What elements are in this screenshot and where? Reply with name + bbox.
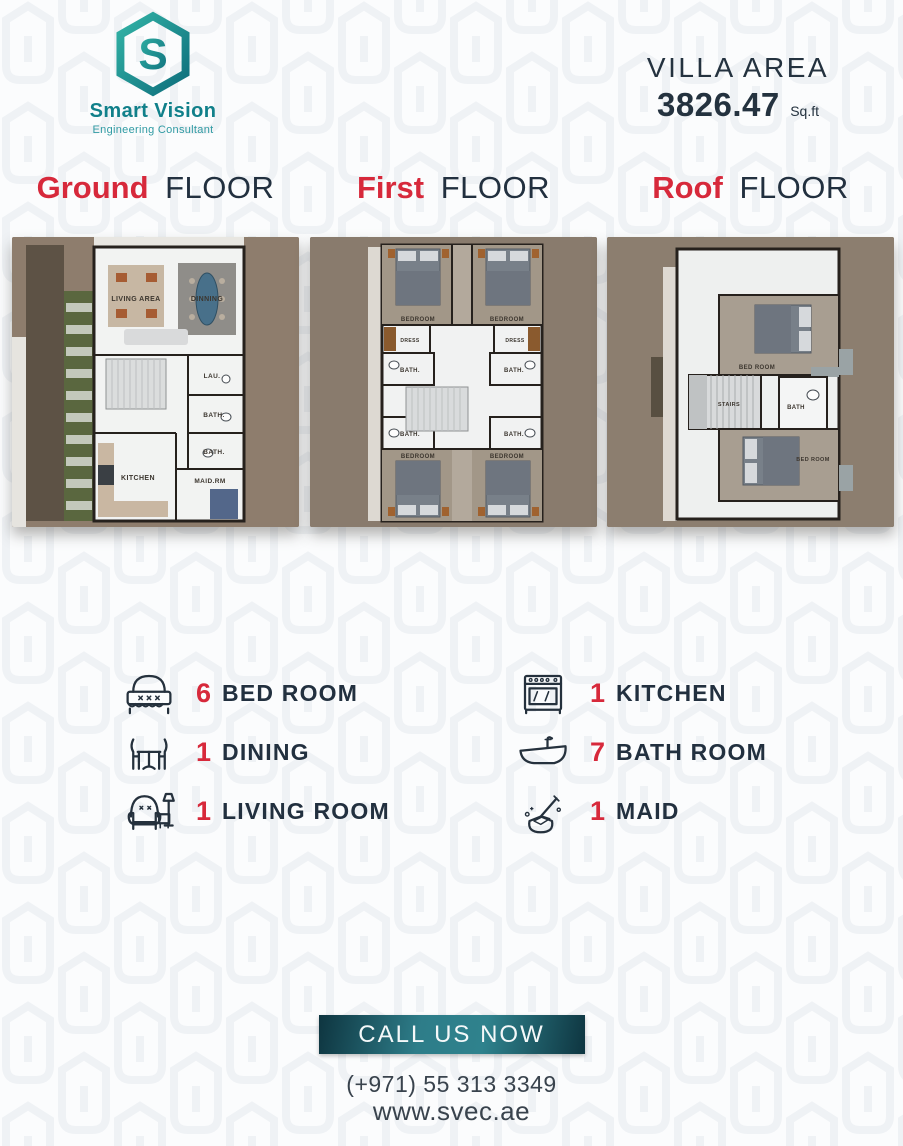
first-floor-title-rest: FLOOR — [441, 170, 550, 205]
room-label: BEDROOM — [490, 317, 524, 323]
room-label: LAU. — [204, 373, 221, 380]
legend-count: 1 — [590, 678, 605, 709]
villa-area-label: VILLA AREA — [628, 52, 848, 84]
villa-area-unit: Sq.ft — [790, 103, 819, 119]
ground-floor-title-rest: FLOOR — [165, 170, 274, 205]
first-floor-plan: BEDROOM BEDROOM DRESS DRESS BATH. BATH. … — [310, 237, 597, 527]
legend-count: 1 — [196, 737, 211, 768]
villa-area-value: 3826.47 — [657, 86, 780, 123]
call-us-now-button[interactable]: CALL US NOW — [319, 1015, 585, 1054]
svg-text:S: S — [138, 30, 167, 79]
legend-item-maid: 1 MAID — [516, 788, 767, 835]
room-label: DRESS — [505, 338, 524, 344]
room-label: BATH. — [504, 432, 524, 438]
room-label: DINNING — [191, 296, 224, 303]
room-label: BATH — [787, 405, 805, 411]
legend-label: LIVING ROOM — [222, 798, 390, 825]
room-label: BEDROOM — [401, 317, 435, 323]
legend-label: BED ROOM — [222, 680, 358, 707]
legend-right-column: 1 KITCHEN 7 BATH ROOM — [516, 670, 767, 835]
legend-left-column: 6 BED ROOM 1 DINING — [122, 670, 390, 835]
room-label: BATH. — [400, 368, 420, 374]
room-label: STAIRS — [718, 402, 740, 408]
phone-number: (+971) 55 313 3349 — [0, 1071, 903, 1098]
roof-floor-title-rest: FLOOR — [739, 170, 848, 205]
legend-label: BATH ROOM — [616, 739, 767, 766]
room-label: BEDROOM — [401, 454, 435, 460]
legend-label: DINING — [222, 739, 310, 766]
room-label: BED ROOM — [796, 457, 829, 463]
ground-floor-plan: LIVING AREA DINNING LAU. BATH. BATH. KIT… — [12, 237, 299, 527]
legend-count: 1 — [196, 796, 211, 827]
legend-item-dining: 1 DINING — [122, 729, 390, 776]
legend-label: MAID — [616, 798, 680, 825]
legend-label: KITCHEN — [616, 680, 727, 707]
bed-icon — [122, 669, 176, 719]
roof-floor-plan: BED ROOM STAIRS BATH BED ROOM — [607, 237, 894, 527]
website-url: www.svec.ae — [0, 1096, 903, 1127]
bath-icon — [516, 728, 570, 778]
ground-floor-title: Ground FLOOR — [12, 170, 299, 206]
room-label: BATH. — [504, 368, 524, 374]
maid-icon — [516, 787, 570, 837]
first-floor-title-highlight: First — [357, 170, 424, 205]
legend-item-kitchen: 1 KITCHEN — [516, 670, 767, 717]
dining-icon — [122, 728, 176, 778]
ground-floor-title-highlight: Ground — [37, 170, 149, 205]
room-label: BEDROOM — [490, 454, 524, 460]
room-label: BED ROOM — [739, 365, 775, 371]
legend-count: 7 — [590, 737, 605, 768]
brand-logo-block: S Smart Vision Engineering Consultant — [58, 10, 248, 136]
legend-count: 6 — [196, 678, 211, 709]
smart-vision-logo-icon: S — [109, 10, 197, 98]
roof-floor-title: Roof FLOOR — [607, 170, 894, 206]
room-label: BATH. — [203, 412, 224, 419]
legend-item-bathroom: 7 BATH ROOM — [516, 729, 767, 776]
first-floor-title: First FLOOR — [310, 170, 597, 206]
legend-item-bedroom: 6 BED ROOM — [122, 670, 390, 717]
legend-item-living-room: 1 LIVING ROOM — [122, 788, 390, 835]
living-room-icon — [122, 787, 176, 837]
room-label: DRESS — [400, 338, 419, 344]
room-label: LIVING AREA — [111, 296, 160, 303]
room-label: BATH. — [203, 449, 224, 456]
villa-area-block: VILLA AREA 3826.47 Sq.ft — [628, 52, 848, 124]
room-label: MAID.RM — [194, 478, 225, 485]
kitchen-icon — [516, 669, 570, 719]
brand-tagline: Engineering Consultant — [58, 124, 248, 136]
flyer-page: S Smart Vision Engineering Consultant VI… — [0, 0, 903, 1146]
roof-floor-title-highlight: Roof — [652, 170, 723, 205]
room-label: KITCHEN — [121, 475, 155, 482]
legend-count: 1 — [590, 796, 605, 827]
brand-name: Smart Vision — [58, 100, 248, 123]
room-label: BATH. — [400, 432, 420, 438]
